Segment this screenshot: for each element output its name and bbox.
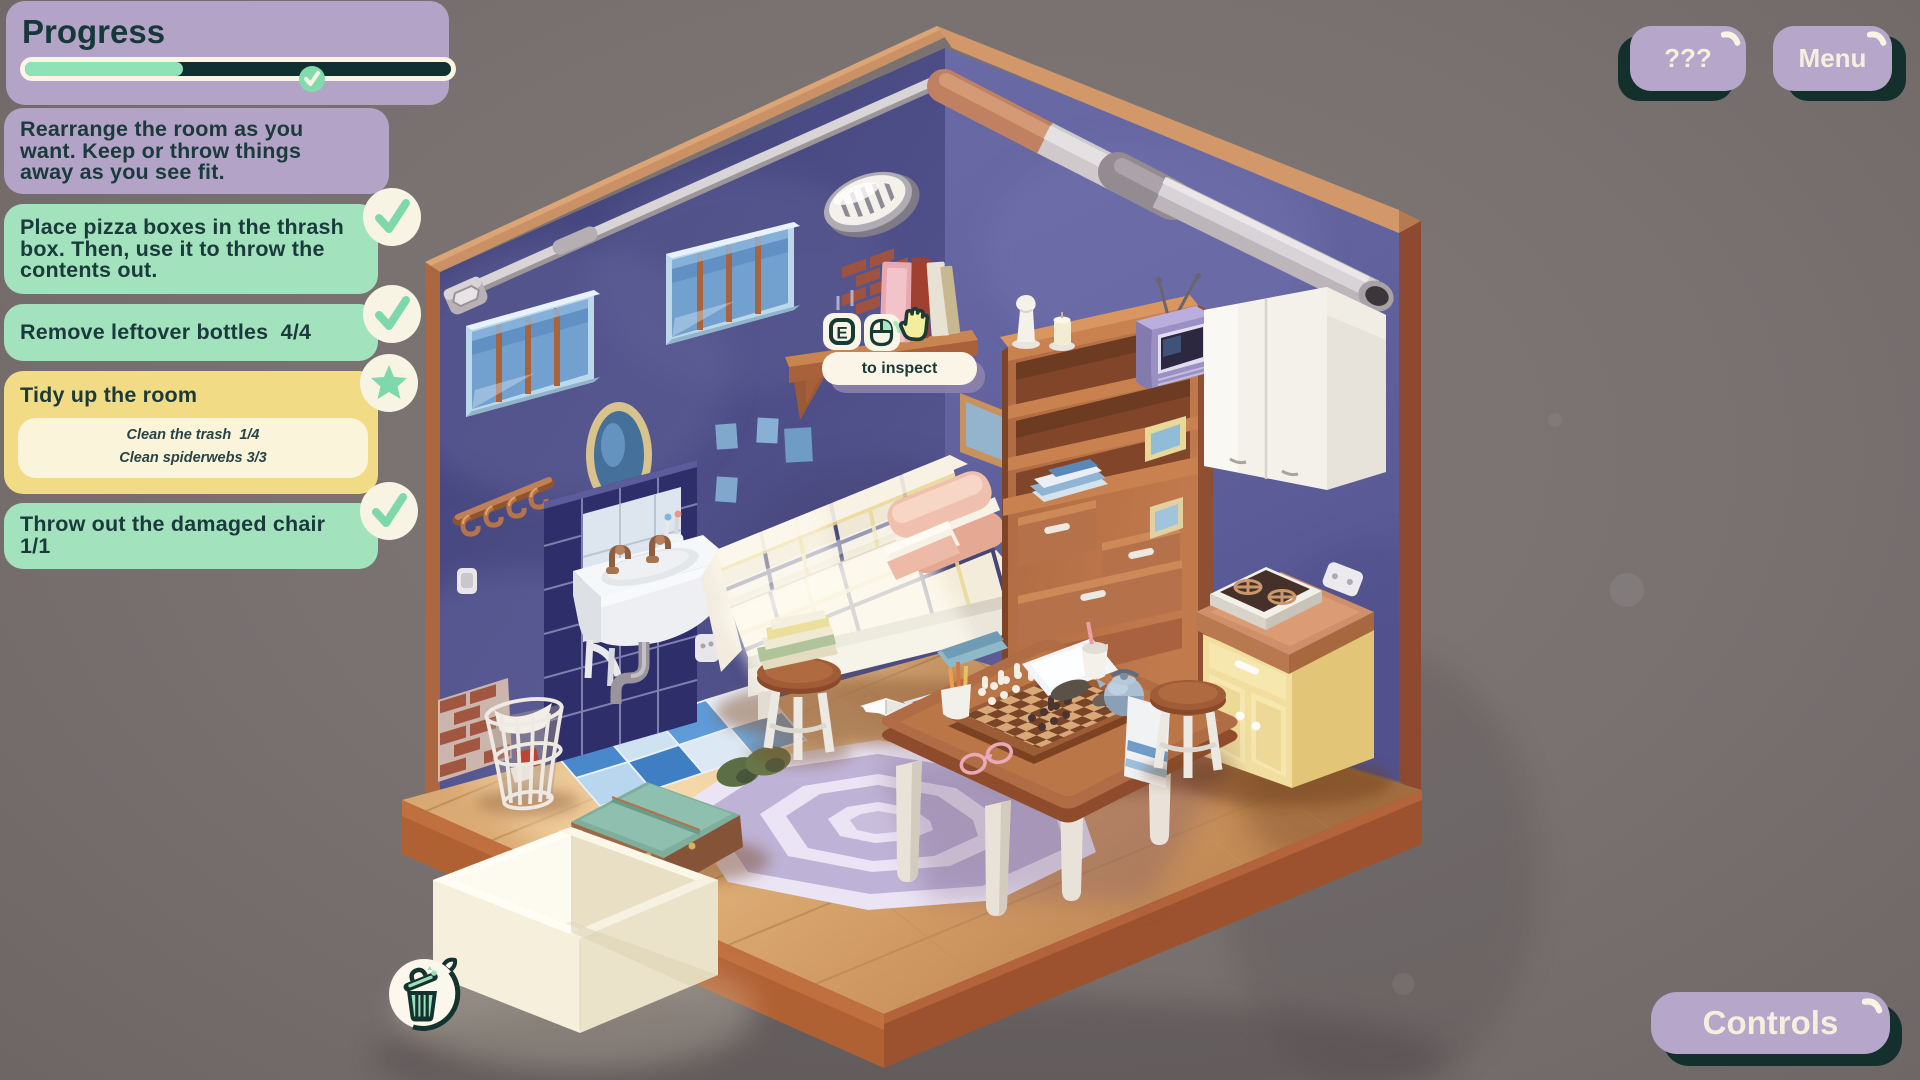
svg-text:E: E [836, 324, 847, 343]
